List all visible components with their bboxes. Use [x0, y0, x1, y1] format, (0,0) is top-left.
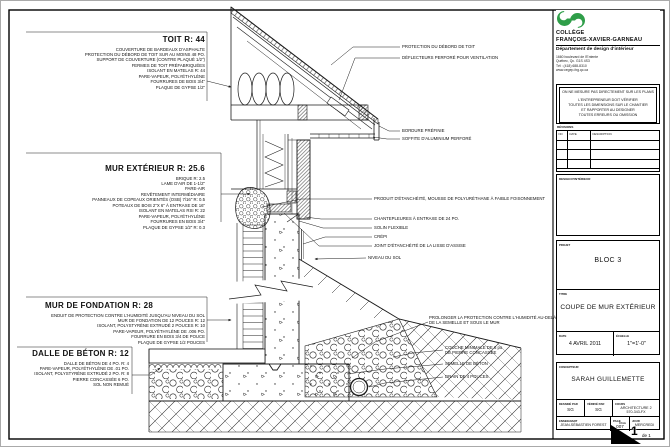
material-label-block: MUR DE FONDATION R: 28ENDUIT DE PROTECTI…: [31, 301, 205, 345]
designer-name: SARAH GUILLEMETTE: [557, 376, 659, 383]
section-title: MUR EXTÉRIEUR R: 25.6: [31, 164, 205, 173]
callout-line: PROTECTION DU DÉBORD DE TOIT: [402, 44, 475, 49]
callout-line: DRAIN DE 4 POUCES: [445, 374, 488, 379]
checked-by-label: VÉRIFIÉ PAR: [585, 400, 612, 406]
attic-insulation: [238, 73, 294, 105]
concrete-slab: [149, 349, 265, 363]
rev-cell: [591, 160, 659, 170]
callout-text: PRODUIT D'ÉTANCHÉITÉ, MOUSSE DE POLYURÉT…: [374, 196, 545, 201]
callout-text: PROTECTION DU DÉBORD DE TOIT: [402, 44, 475, 49]
callout-line: DE LA SEMELLE ET SOUS LE MUR: [429, 320, 556, 325]
date-label: DATE: [557, 332, 613, 338]
gravel-under-slab: [149, 369, 223, 399]
callout-line: JOINT D'ÉTANCHÉITÉ DE LA LISSE D'ASSISE: [374, 243, 466, 248]
page-tag-label: PAGE: [619, 422, 626, 425]
section-title: DALLE DE BÉTON R: 12: [19, 349, 129, 358]
callout-text: SEMELLE DE BÉTON: [445, 361, 488, 366]
signature-box: CONCEPTEUR SARAH GUILLEMETTE DESSINÉ PAR…: [556, 362, 660, 430]
material-label-block: DALLE DE BÉTON R: 12DALLE DE BÉTON DE 4 …: [19, 349, 129, 388]
drawn-by-label: DESSINÉ PAR: [557, 400, 584, 406]
stud-insulation: [265, 141, 283, 187]
callout-text: SOFFITE D'ALUMINIUM PERFORÉ: [402, 136, 471, 141]
date-value: 4 AVRIL 2011: [557, 341, 613, 347]
title-block: COLLÈGE FRANÇOIS-XAVIER-GARNEAU Départem…: [553, 10, 663, 439]
project-label: PROJET: [557, 241, 659, 247]
rev-cell: [591, 141, 659, 151]
rev-header-date: DATE: [568, 131, 591, 141]
seal-box: DESIGN D'INTÉRIEUR: [556, 174, 660, 236]
title-label: TITRE: [557, 290, 659, 296]
material-line: PLAQUE DE GYPSE 1/2": [31, 85, 205, 90]
college-name: COLLÈGE FRANÇOIS-XAVIER-GARNEAU: [556, 30, 660, 46]
seal-label: DESIGN D'INTÉRIEUR: [557, 175, 659, 182]
material-line: PLAQUE DE GYPSE 1/2" R: 0.3: [31, 225, 205, 230]
callout-line: SOFFITE D'ALUMINIUM PERFORÉ: [402, 136, 471, 141]
college-address: 1660 boulevard de l'Entente Québec, Qc. …: [556, 55, 660, 73]
page-of: de 1: [642, 433, 651, 438]
callout-line: DE PIERRE CONCASSÉE: [445, 350, 502, 355]
scale-value: 1"=1'-0": [614, 341, 659, 347]
rev-header-no: NO: [557, 131, 568, 141]
callout-line: CRÉPI: [374, 234, 387, 239]
material-line: SOL NON REMUÉ: [19, 382, 129, 387]
callout-text: JOINT D'ÉTANCHÉITÉ DE LA LISSE D'ASSISE: [374, 243, 466, 248]
callout-text: CRÉPI: [374, 234, 387, 239]
callout-line: SOLIN FLEXIBLE: [374, 225, 408, 230]
drawing-sheet: TOIT R: 44COUVERTURE DE BARDEAUX D'ASPHA…: [0, 0, 670, 447]
callout-text: COUCHE MINIMALE DE 6 poDE PIERRE CONCASS…: [445, 345, 502, 356]
rev-cell: [557, 150, 568, 160]
rev-cell: [568, 141, 591, 151]
callout-line: NIVEAU DU SOL: [368, 255, 401, 260]
section-title: TOIT R: 44: [31, 35, 205, 44]
brick-veneer: [297, 140, 310, 219]
callout-text: PROLONGER LA PROTECTION CONTRE L'HUMIDIT…: [429, 315, 556, 326]
callout-text: SOLIN FLEXIBLE: [374, 225, 408, 230]
undisturbed-soil: [149, 401, 521, 432]
project-value: BLOC 3: [557, 257, 659, 264]
callout-text: BORDURE PRÉFINIE: [402, 128, 445, 133]
drawn-by-value: SG: [557, 407, 584, 412]
callout-line: SEMELLE DE BÉTON: [445, 361, 488, 366]
rev-cell: [568, 150, 591, 160]
material-line: PLAQUE DE GYPSE 1/2 POUCES: [31, 340, 205, 345]
vapour-barrier: [149, 365, 221, 369]
page-current: 1: [631, 424, 638, 438]
rev-cell: [568, 160, 591, 170]
revisions-table: NO DATE DESCRIPTION: [556, 130, 660, 172]
callout-text: CHANTEPLEURES À ENTRAXE DE 24 PO.: [374, 216, 459, 221]
callout-line: PRODUIT D'ÉTANCHÉITÉ, MOUSSE DE POLYURÉT…: [374, 196, 545, 201]
college-info: COLLÈGE FRANÇOIS-XAVIER-GARNEAU Départem…: [556, 10, 660, 82]
callout-line: BORDURE PRÉFINIE: [402, 128, 445, 133]
page-indicator: PAGE 1 de 1: [611, 422, 657, 444]
drawing-title: COUPE DE MUR EXTÉRIEUR: [557, 304, 659, 311]
note-line: TOUTES LES DIMENSIONS SUR LE CHANTIER: [560, 103, 656, 108]
college-logo-icon: [556, 10, 586, 29]
notes-box: ON NE MESURE PAS DIRECTEMENT SUR LES PLA…: [556, 84, 660, 124]
material-label-block: MUR EXTÉRIEUR R: 25.6BRIQUE R: 2.5LAME D…: [31, 164, 205, 230]
teacher-name: JEAN-SÉBASTIEN FOREST: [557, 423, 610, 427]
callout-line: CHANTEPLEURES À ENTRAXE DE 24 PO.: [374, 216, 459, 221]
project-box: PROJET BLOC 3 TITRE COUPE DE MUR EXTÉRIE…: [556, 240, 660, 355]
callout-line: DÉFLECTEURS PERFORÉ POUR VENTILATION: [402, 55, 498, 60]
note-line: ON NE MESURE PAS DIRECTEMENT SUR LES PLA…: [560, 90, 656, 95]
callout-text: NIVEAU DU SOL: [368, 255, 401, 260]
rev-header-description: DESCRIPTION: [591, 131, 659, 141]
course-value: ARCHITECTURE 2 570-343-FX: [613, 406, 659, 414]
rev-cell: [557, 141, 568, 151]
checked-by-value: SG: [585, 407, 612, 412]
rev-cell: [591, 150, 659, 160]
revisions-label: RÉVISIONS: [557, 125, 573, 129]
note-line: TOUTES ERREURS OU OMISSION: [560, 113, 656, 118]
rev-cell: [557, 160, 568, 170]
designer-label: CONCEPTEUR: [557, 363, 659, 369]
material-label-block: TOIT R: 44COUVERTURE DE BARDEAUX D'ASPHA…: [31, 35, 205, 90]
section-title: MUR DE FONDATION R: 28: [31, 301, 205, 310]
callout-text: DRAIN DE 4 POUCES: [445, 374, 488, 379]
callout-text: DÉFLECTEURS PERFORÉ POUR VENTILATION: [402, 55, 498, 60]
scale-label: ÉCHELLE: [614, 332, 659, 338]
college-department: Département de design d'intérieur: [556, 47, 660, 53]
